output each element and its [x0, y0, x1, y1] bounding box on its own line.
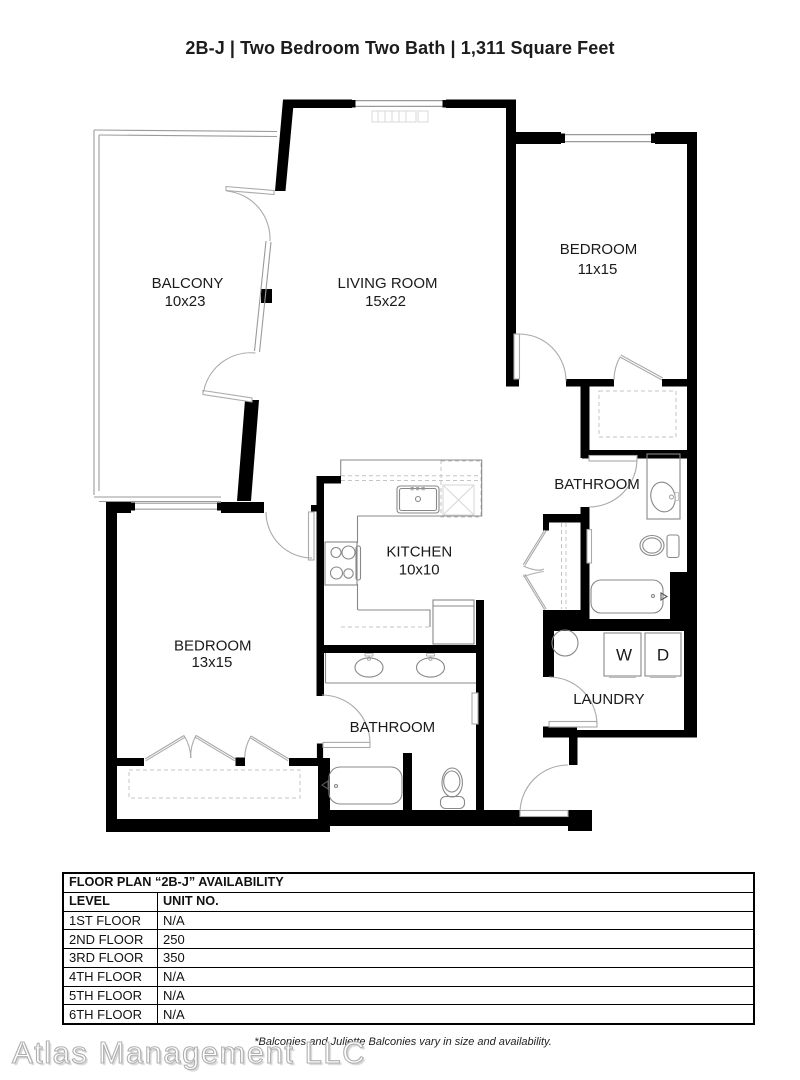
svg-text:BEDROOM: BEDROOM	[560, 241, 638, 258]
svg-text:11x15: 11x15	[578, 261, 618, 278]
svg-text:LIVING ROOM: LIVING ROOM	[337, 275, 437, 292]
svg-text:D: D	[657, 646, 669, 665]
svg-text:BALCONY: BALCONY	[152, 275, 224, 292]
svg-text:10x23: 10x23	[165, 293, 206, 310]
svg-text:15x22: 15x22	[365, 293, 406, 310]
svg-text:LAUNDRY: LAUNDRY	[573, 691, 644, 708]
svg-text:BATHROOM: BATHROOM	[350, 719, 436, 736]
svg-text:10x10: 10x10	[399, 562, 440, 579]
svg-text:W: W	[616, 646, 632, 665]
svg-text:BATHROOM: BATHROOM	[554, 476, 640, 493]
svg-text:BEDROOM: BEDROOM	[174, 638, 252, 655]
svg-text:KITCHEN: KITCHEN	[386, 544, 452, 561]
svg-text:13x15: 13x15	[191, 654, 232, 671]
